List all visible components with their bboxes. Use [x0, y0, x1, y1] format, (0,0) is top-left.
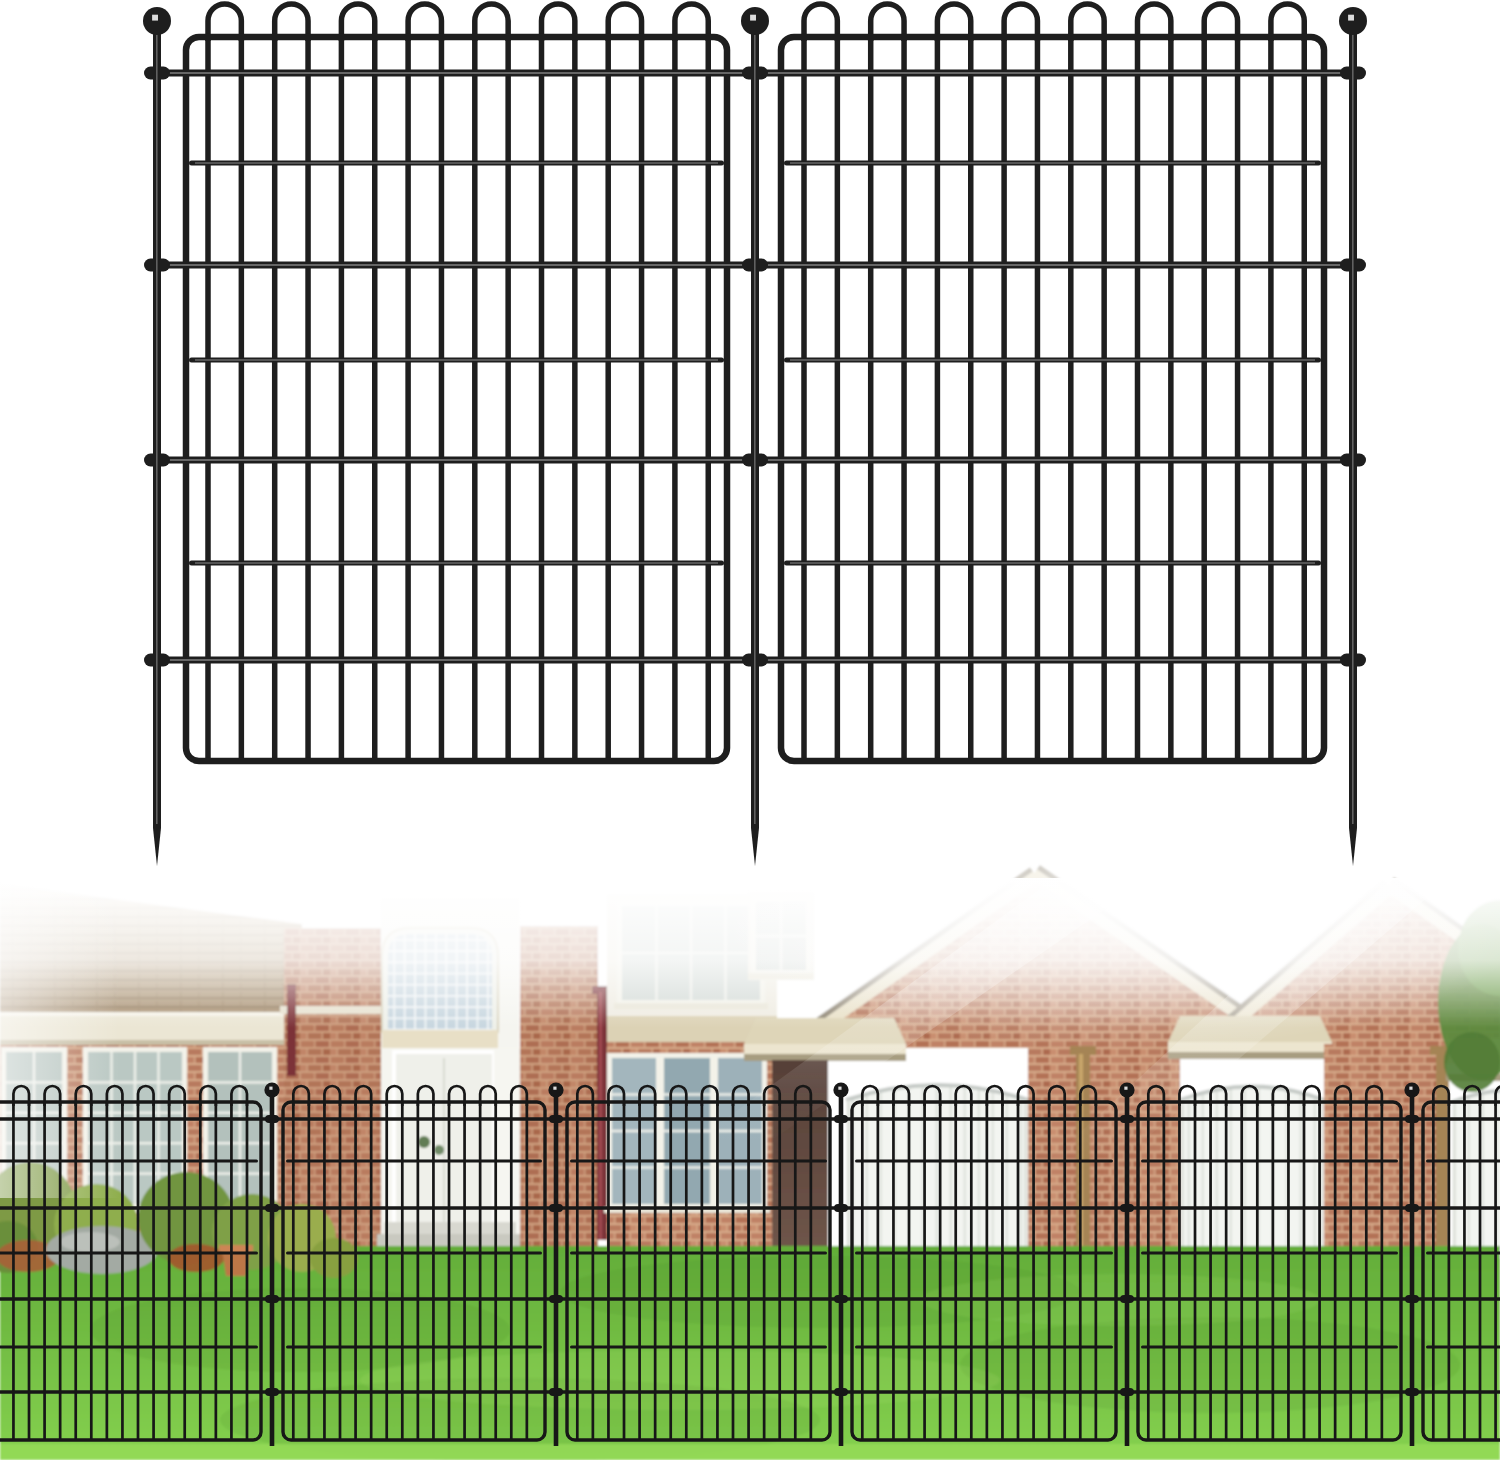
fence-bar: [1017, 1102, 1020, 1440]
fence-bar: [1095, 1102, 1098, 1440]
garage-door-1: [846, 1085, 1028, 1258]
fence-bar: [472, 37, 478, 761]
inner-rail: [1426, 1160, 1500, 1163]
fence-bar: [1079, 1102, 1082, 1440]
fence-bar: [576, 1102, 579, 1440]
fence-bar: [432, 1102, 435, 1440]
fence-bar: [183, 1102, 186, 1440]
fence-bar: [1178, 1102, 1181, 1440]
fence-bar: [1225, 1102, 1228, 1440]
ball-finial: [143, 7, 171, 35]
fence-bar: [1349, 1102, 1352, 1440]
bush: [310, 1238, 358, 1278]
entry-step-lower: [377, 1234, 524, 1248]
fence-bar: [1032, 1102, 1035, 1440]
full-rail: [0, 1206, 1500, 1210]
finial-glint: [1124, 1087, 1127, 1090]
fence-bar: [12, 1102, 15, 1440]
stake-rod: [554, 1097, 559, 1446]
fence-bar: [246, 1102, 249, 1440]
fence-bar: [706, 37, 712, 761]
fence-bar: [74, 1102, 77, 1440]
fence-panel: [781, 4, 1324, 761]
fence-bar: [372, 37, 378, 761]
fence-bar: [1479, 1102, 1482, 1440]
fence-bar: [1287, 1102, 1290, 1440]
fence-bar: [137, 1102, 140, 1440]
fence-bar: [405, 37, 411, 761]
stake-rod: [1410, 1097, 1415, 1446]
fence-bar: [28, 1102, 31, 1440]
fence-bar: [685, 1102, 688, 1440]
fence-bar: [861, 1102, 864, 1440]
fence-bar: [1494, 1102, 1497, 1440]
panel-frame: [186, 37, 727, 761]
fence-bar: [526, 1102, 529, 1440]
fence-bar: [1318, 1102, 1321, 1440]
finial-glint: [1348, 15, 1354, 21]
inner-rail: [1141, 1346, 1398, 1349]
fence-bar: [868, 37, 874, 761]
fence-bar: [106, 1102, 109, 1440]
fence-bar: [908, 1102, 911, 1440]
fence-bar: [877, 1102, 880, 1440]
tower-trim-band: [382, 1030, 498, 1048]
fence-bar: [592, 1102, 595, 1440]
fence-bar: [308, 1102, 311, 1440]
fence-bar: [43, 1102, 46, 1440]
finial-glint: [1409, 1087, 1412, 1090]
tree: [1444, 1032, 1500, 1092]
fence-bar: [923, 1102, 926, 1440]
fence-bar: [59, 1102, 62, 1440]
fence-bar: [354, 1102, 357, 1440]
fence-bar: [494, 1102, 497, 1440]
inner-rail: [570, 1346, 827, 1349]
ball-finial: [741, 7, 769, 35]
fence-bar: [732, 1102, 735, 1440]
door-wreath: [418, 1136, 430, 1148]
fence-bar: [168, 1102, 171, 1440]
fence-bar: [672, 37, 678, 761]
fence-bar: [121, 1102, 124, 1440]
door-wreath: [434, 1145, 444, 1155]
fence-bar: [339, 37, 345, 761]
fence-bar: [305, 37, 311, 761]
fence-bar: [448, 1102, 451, 1440]
fence-bar: [439, 37, 445, 761]
ground-stake: [143, 7, 171, 866]
fence-bar: [539, 37, 545, 761]
maroon-downspout-highlight: [599, 992, 602, 1240]
inner-rail: [855, 1346, 1113, 1349]
garage-door-3: [1452, 1090, 1500, 1258]
fence-bar: [401, 1102, 404, 1440]
fence-bar: [835, 37, 841, 761]
fence-bar: [747, 1102, 750, 1440]
inner-rail: [570, 1252, 827, 1255]
fence-line-drawing: [143, 4, 1367, 866]
fence-bar: [1235, 37, 1241, 761]
fence-bar: [1163, 1102, 1166, 1440]
fence-bar: [607, 1102, 610, 1440]
fence-bar: [152, 1102, 155, 1440]
fence-bar: [892, 1102, 895, 1440]
fence-bar: [638, 1102, 641, 1440]
fence-bar: [901, 37, 907, 761]
fence-bar: [935, 37, 941, 761]
inner-rail: [1426, 1252, 1500, 1255]
ball-finial: [1339, 7, 1367, 35]
ball-finial: [548, 1082, 563, 1097]
inner-rail: [855, 1252, 1113, 1255]
inner-rail: [855, 1160, 1113, 1163]
product-image-canvas: [0, 0, 1500, 1460]
fence-bar: [1035, 37, 1041, 761]
inner-rail: [570, 1160, 827, 1163]
fence-bar: [1194, 1102, 1197, 1440]
inner-rail: [1141, 1160, 1398, 1163]
bronze-downspout-2: [1436, 1054, 1449, 1258]
fence-bar: [1135, 37, 1141, 761]
inner-rail: [286, 1346, 542, 1349]
fence-bar: [669, 1102, 672, 1440]
fence-panel: [186, 4, 727, 761]
inner-rail: [1141, 1252, 1398, 1255]
fence-bar: [801, 37, 807, 761]
inner-rail: [1426, 1346, 1500, 1349]
finial-glint: [152, 15, 158, 21]
fence-bar: [479, 1102, 482, 1440]
fence-bar: [510, 1102, 513, 1440]
fence-bar: [215, 1102, 218, 1440]
fence-bar: [605, 37, 611, 761]
fence-bar: [1001, 1102, 1004, 1440]
full-rail: [0, 1390, 1500, 1394]
fence-bar: [370, 1102, 373, 1440]
ball-finial: [1119, 1082, 1134, 1097]
lawn-light: [360, 1350, 1000, 1410]
inner-rail: [0, 1160, 258, 1163]
fence-bar: [417, 1102, 420, 1440]
fence-bar: [1448, 1102, 1451, 1440]
fence-bar: [1381, 1102, 1384, 1440]
lawn-bright-edge: [0, 1444, 1500, 1460]
fence-bar: [1334, 1102, 1337, 1440]
fence-bar: [1268, 37, 1274, 761]
finial-glint: [838, 1087, 841, 1090]
fence-bar: [1147, 1102, 1150, 1440]
ground-stake: [741, 7, 769, 866]
installed-photo: [0, 750, 1500, 1460]
fence-bar: [1209, 1102, 1212, 1440]
inner-rail: [286, 1160, 542, 1163]
fence-bar: [623, 1102, 626, 1440]
fence-bar: [292, 1102, 295, 1440]
fence-bar: [199, 1102, 202, 1440]
fence-bar: [239, 37, 245, 761]
fence-bar: [1001, 37, 1007, 761]
inner-rail: [0, 1252, 258, 1255]
fence-bar: [323, 1102, 326, 1440]
fence-bar: [763, 1102, 766, 1440]
fence-bar: [1302, 37, 1308, 761]
finial-glint: [269, 1087, 272, 1090]
fence-bar: [90, 1102, 93, 1440]
ball-finial: [264, 1082, 279, 1097]
ball-finial: [1404, 1082, 1419, 1097]
inner-rail: [286, 1252, 542, 1255]
fence-bar: [1365, 1102, 1368, 1440]
fence-bar: [1303, 1102, 1306, 1440]
ground-stake: [1339, 7, 1367, 866]
ball-finial: [833, 1082, 848, 1097]
fence-bar: [1432, 1102, 1435, 1440]
fence-bar: [778, 1102, 781, 1440]
fence-bar: [1101, 37, 1107, 761]
full-rail: [0, 1297, 1500, 1301]
fence-bar: [968, 37, 974, 761]
finial-glint: [553, 1087, 556, 1090]
fence-bar: [1463, 1102, 1466, 1440]
fence-bar: [794, 1102, 797, 1440]
inner-rail: [0, 1346, 258, 1349]
fence-bar: [1272, 1102, 1275, 1440]
fence-bar: [954, 1102, 957, 1440]
fence-bar: [970, 1102, 973, 1440]
full-rail: [0, 1117, 1500, 1121]
fence-bar: [1063, 1102, 1066, 1440]
fence-bar: [810, 1102, 813, 1440]
fence-bar: [385, 1102, 388, 1440]
stake-rod: [1125, 1097, 1130, 1446]
fence-bar: [505, 37, 511, 761]
brick-pier-2: [1324, 1044, 1444, 1258]
fence-bar: [205, 37, 211, 761]
fence-bar: [654, 1102, 657, 1440]
fence-bar: [463, 1102, 466, 1440]
stake-spike-tip: [153, 828, 161, 866]
fence-bar: [701, 1102, 704, 1440]
garage-door-2: [1180, 1087, 1324, 1259]
fence-bar: [1240, 1102, 1243, 1440]
finial-glint: [750, 15, 756, 21]
stake-rod: [270, 1097, 275, 1446]
fence-bar: [1168, 37, 1174, 761]
fence-bar: [1048, 1102, 1051, 1440]
fence-bar: [716, 1102, 719, 1440]
fence-bar: [1201, 37, 1207, 761]
panel-frame: [781, 37, 1324, 761]
fence-bar: [939, 1102, 942, 1440]
fence-bar: [339, 1102, 342, 1440]
fence-bar: [230, 1102, 233, 1440]
fence-bar: [272, 37, 278, 761]
fence-product-listing-image: [0, 0, 1500, 1460]
stake-rod: [839, 1097, 844, 1446]
fence-bar: [639, 37, 645, 761]
fence-bar: [986, 1102, 989, 1440]
fence-bar: [1256, 1102, 1259, 1440]
fence-bar: [572, 37, 578, 761]
fence-bar: [1068, 37, 1074, 761]
